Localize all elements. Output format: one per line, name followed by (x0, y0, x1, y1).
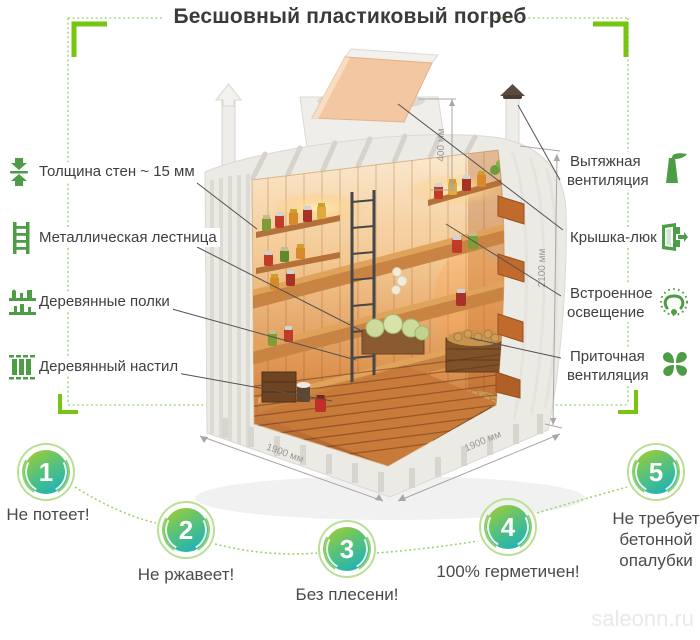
feature-label-2: Не ржавеет! (126, 564, 246, 585)
callout-supply-vent: Приточная вентиляция (567, 347, 671, 385)
callout-light: Встроенное освещение (567, 284, 671, 322)
vent-pipe-left (216, 84, 241, 166)
cellar-infographic: 400 мм 2100 мм 1900 мм 1900 мм (0, 0, 700, 640)
wall-thickness-icon (8, 157, 36, 187)
feature-label-3: Без плесени! (287, 584, 407, 605)
feature-number: 2 (164, 508, 208, 552)
feature-circle-2: 2 (157, 501, 215, 559)
feature-label-5: Не требует бетонной опалубки (606, 508, 700, 571)
flooring-icon (9, 352, 35, 384)
watermark: saleonn.ru (591, 606, 694, 632)
feature-number: 4 (486, 505, 530, 549)
shelves-icon (8, 287, 38, 317)
feature-number: 5 (634, 450, 678, 494)
dim-lid-height: 400 мм (436, 128, 447, 161)
feature-circle-1: 1 (17, 443, 75, 501)
callout-ladder: Металлическая лестница (36, 228, 220, 247)
feature-circle-4: 4 (479, 498, 537, 556)
callout-shelves: Деревянные полки (36, 292, 173, 311)
page-title: Бесшовный пластиковый погреб (0, 5, 700, 29)
callout-flooring: Деревянный настил (36, 357, 181, 376)
feature-label-1: Не потеет! (0, 504, 108, 525)
callout-hatch: Крышка-люк (567, 228, 671, 247)
callout-exhaust-vent: Вытяжная вентиляция (567, 152, 671, 190)
feature-number: 3 (325, 527, 369, 571)
feature-circle-5: 5 (627, 443, 685, 501)
callout-wall-thickness: Толщина стен ~ 15 мм (36, 162, 198, 181)
feature-label-4: 100% герметичен! (428, 561, 588, 582)
feature-circle-3: 3 (318, 520, 376, 578)
feature-number: 1 (24, 450, 68, 494)
ladder-icon (9, 222, 35, 254)
